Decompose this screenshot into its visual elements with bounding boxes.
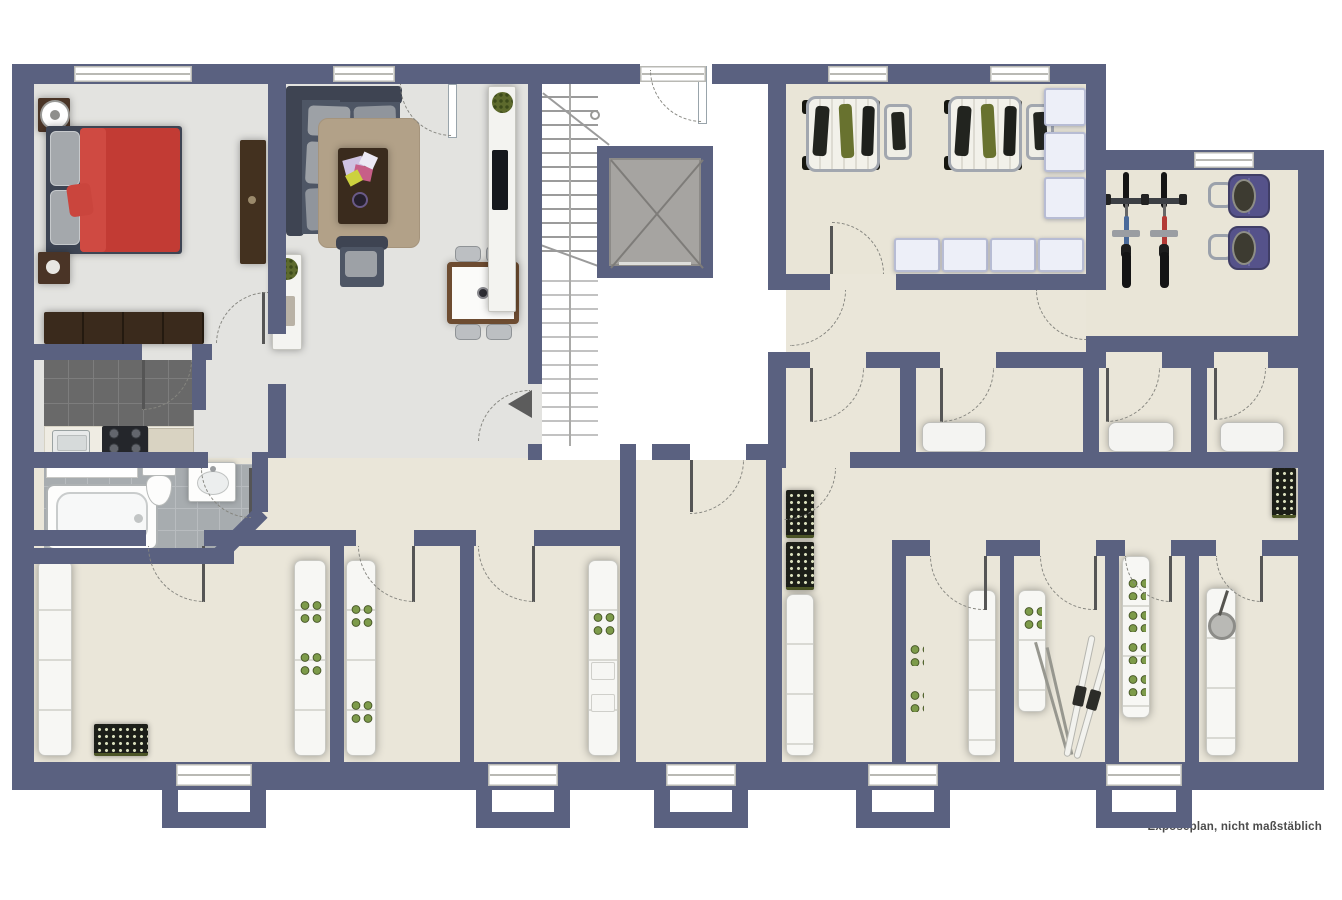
window-cellar-2-mullion [490,774,556,776]
jars-4 [349,698,373,726]
light-well-2 [476,790,570,828]
window-cellar-5 [1106,764,1182,786]
stroller-2-item-3 [1003,106,1017,156]
lamp-center [50,110,60,120]
wall-cellar-left-header-b [204,530,356,546]
wall-bedroom-living-divider [268,84,286,334]
wall-hall-stair-stub [528,444,542,460]
wall-midrooms-d [1162,352,1214,368]
light-well-3 [654,790,748,828]
elevator-car [609,158,701,266]
wall-bike-left [1086,170,1106,290]
sideboard [44,312,204,344]
dining-chair-3 [455,324,481,340]
wall-cellar-right-header-g [1262,540,1298,556]
light-well-4 [856,790,950,828]
wall-center-left [620,444,636,762]
stroller-1-side-item [891,112,906,151]
shelf-cellar-left-4 [588,560,618,756]
wall-left [12,64,34,790]
dining-chair-1 [455,246,481,262]
bicycle-2-pedals [1150,230,1178,237]
wall-stroller-right [1086,64,1106,170]
door-leaf-cr-1 [984,556,987,610]
wall-cellar-right-div-2 [1000,540,1014,762]
freezer-chest-1 [922,422,986,452]
wall-midroom-div-2 [1083,368,1099,452]
skis-binding-1 [1072,685,1087,707]
wall-midrooms-b [866,352,940,368]
cart-2-bucket [1232,231,1256,265]
bicycle-2-rear-wheel [1160,252,1169,288]
window-living-mullion [335,73,393,75]
stroller-1-item-2 [839,104,855,159]
cart-2 [1208,226,1270,270]
stroller-2 [938,92,1056,178]
window-bike-mullion [1196,159,1252,161]
storage-box-3 [1044,177,1086,219]
storage-box-6 [990,238,1036,272]
jars-8 [1022,604,1042,630]
wine-rack-corridor [1272,468,1296,518]
wall-corridor-right [768,352,786,468]
wall-midrooms-a [786,352,810,368]
window-living [333,66,395,82]
wall-right [1298,150,1324,790]
jars-7 [908,688,924,712]
bicycle-1-rear-wheel [1122,252,1131,288]
kitchen-sink-bowl [57,435,87,451]
window-cellar-1 [176,764,252,786]
wall-cellar-right-div-3 [1105,540,1119,762]
window-cellar-5-mullion [1108,774,1180,776]
shelf-cellar-left-1 [38,560,72,756]
light-well-1 [162,790,266,828]
wall-corridor-stroller [768,84,786,290]
armchair-cushion [345,251,377,277]
freezer-chest-2 [1108,422,1174,452]
kitchen-sink [52,430,90,454]
window-stroller-1-mullion [830,73,886,75]
storage-box-7 [1038,238,1084,272]
jars-2 [298,650,322,678]
wall-cellar-right-div-1 [892,540,906,762]
wall-cellar-left-header-a [34,530,146,546]
toilet [142,464,176,506]
jars-5 [591,610,615,638]
window-cellar-1-mullion [178,774,250,776]
wall-stroller-bottom-b [896,274,1106,290]
tv [492,150,508,210]
table-bowl [352,192,368,208]
bicycle-2-grip-l [1141,194,1149,205]
wine-rack-cellar-left [94,724,148,756]
wall-cellar-left-header-c [414,530,476,546]
wall-midrooms-bottom [850,452,1298,468]
wall-bike-bottom [1086,336,1298,352]
cart-1-bucket [1232,179,1256,213]
dining-chair-4 [486,324,512,340]
wall-cellar-left-header-d [534,530,620,546]
stairs-start-circle [590,110,600,120]
storage-box-2 [1044,132,1086,172]
wall-bath-top [32,452,208,468]
shelf-cellar-right-1 [786,594,814,756]
jars-12 [1126,672,1146,696]
skis-binding-2 [1085,689,1101,711]
wall-hall-stair [528,84,542,384]
wall-cellar-left-div-2 [460,546,474,762]
wall-bedroom-bottom-b [192,344,212,360]
plant-tv [492,92,513,113]
bathtub-drain [134,514,143,523]
stroller-2-item-2 [981,104,997,159]
skis [1048,634,1104,760]
door-leaf-cr-2 [1094,556,1097,610]
elevator-door [619,262,691,265]
window-bike [1194,152,1254,168]
window-bedroom-mullion [76,73,190,75]
storage-box-4 [894,238,940,272]
freezer-chest-3 [1220,422,1284,452]
window-cellar-4 [868,764,938,786]
jars-1 [298,598,322,626]
bicycle-2 [1144,172,1184,288]
light-well-5 [1096,790,1192,828]
jars-11 [1126,640,1146,664]
box-small-1 [591,662,615,680]
wine-rack-right-2 [786,542,814,590]
toilet-bowl [146,475,172,506]
pot [1208,612,1236,640]
wall-top-mid [712,64,786,84]
storage-box-5 [942,238,988,272]
wall-midrooms-c [996,352,1106,368]
accent-pillow [66,182,94,217]
window-cellar-2 [488,764,558,786]
pillow-top [50,131,80,186]
wall-cellar-right-header-f [1199,540,1216,556]
stroller-1-item-3 [861,106,875,156]
wall-cellar-right-header-a [906,540,930,556]
shelf-cellar-right-2 [968,590,996,756]
wall-stroller-bottom-a [768,274,830,290]
jars-10 [1126,608,1146,632]
wall-center-right [766,460,782,762]
bicycle-1 [1106,172,1146,288]
jars-6 [908,642,924,666]
wall-divider-stub [268,384,286,458]
wall-kitchen-right [192,360,206,410]
shelf-cellar-left-3 [346,560,376,756]
wall-cellar-left-div-1 [330,546,344,762]
dresser-knob [248,196,256,204]
wall-midroom-div-3 [1191,368,1207,452]
cart-1 [1208,174,1270,218]
window-stroller-2 [990,66,1050,82]
floor-plan: Exposéplan, nicht maßstäblich Illustrati… [0,0,1342,900]
bicycle-2-grip-r [1179,194,1187,205]
stairs-center-line [569,84,571,446]
wall-cellar-right-div-4 [1185,540,1199,762]
wall-midrooms-e [1268,352,1298,368]
window-cellar-4-mullion [870,774,936,776]
wall-bath-right [252,452,268,512]
wall-corridor-bottom-a [652,444,690,460]
window-bedroom [74,66,192,82]
box-small-2 [591,694,615,712]
wall-midroom-div-1 [900,368,916,452]
window-cellar-3-mullion [668,774,734,776]
storage-box-1 [1044,88,1086,126]
stroller-1 [796,92,914,178]
nightstand-deco [46,260,60,274]
window-stroller-1 [828,66,888,82]
window-stroller-2-mullion [992,73,1048,75]
window-cellar-3 [666,764,736,786]
jars-3 [349,602,373,630]
wall-cellar-right-header-c [1014,540,1040,556]
bicycle-1-pedals [1112,230,1140,237]
wall-bedroom-bottom-a [32,344,142,360]
